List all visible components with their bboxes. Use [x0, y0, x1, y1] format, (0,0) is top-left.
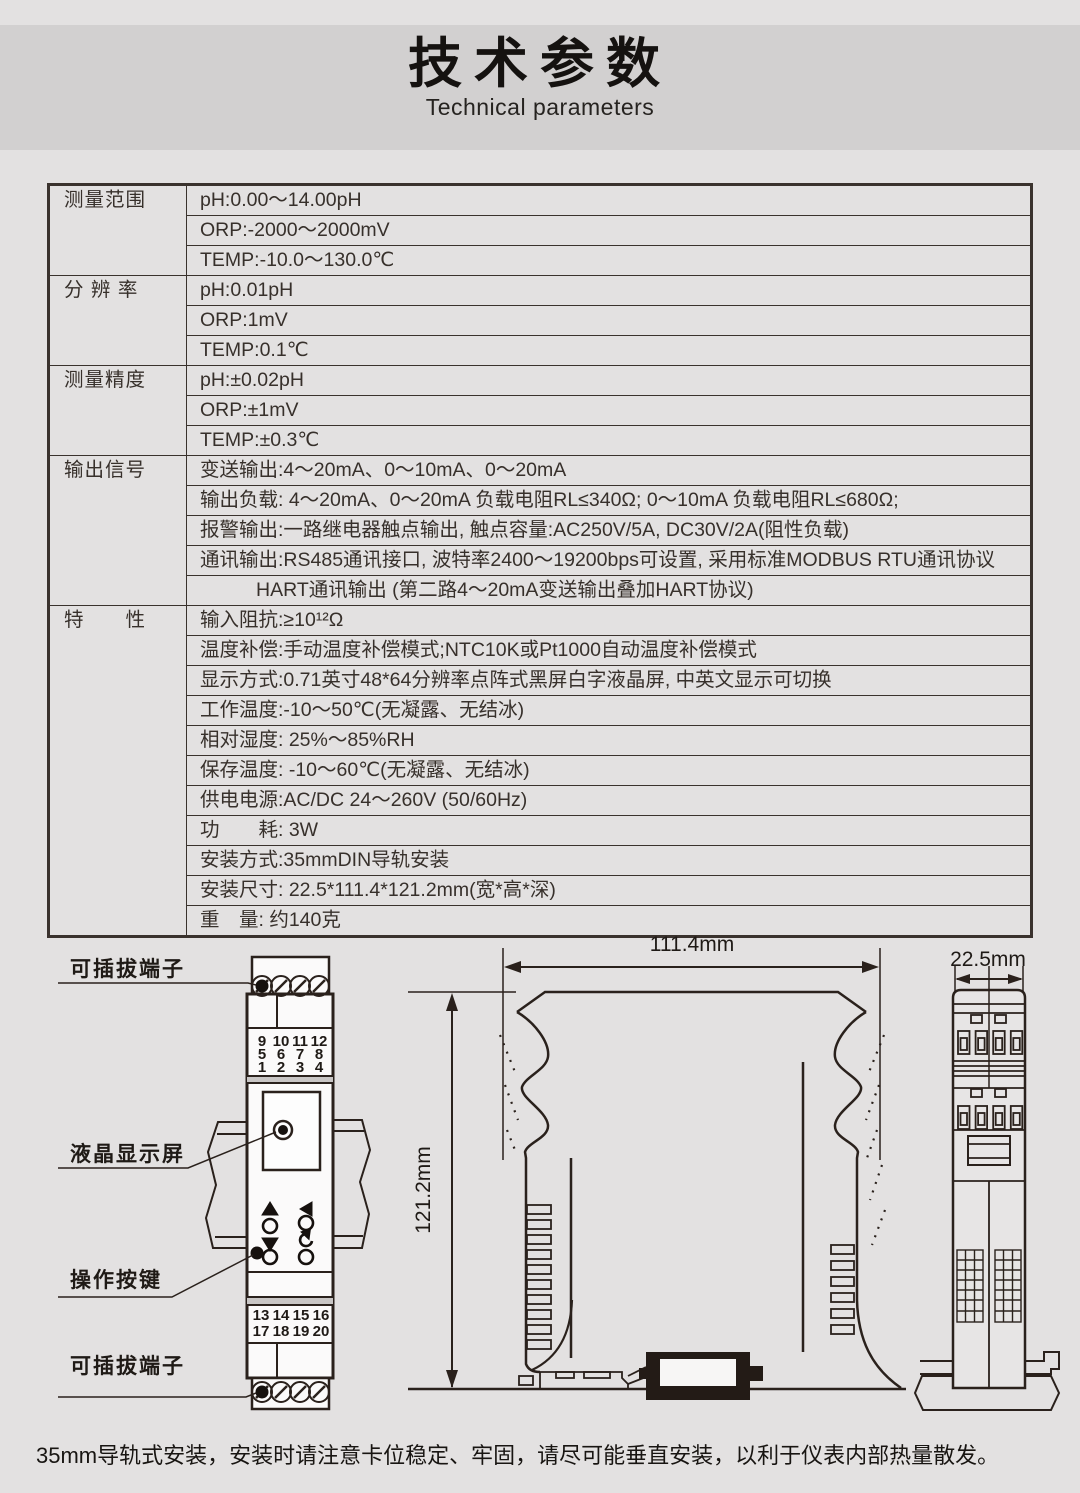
- table-row: TEMP:-10.0～130.0℃: [49, 246, 1032, 276]
- spec-value: ORP:1mV: [187, 306, 1032, 336]
- table-row: ORP:1mV: [49, 306, 1032, 336]
- height-dimension: 121.2mm: [408, 992, 516, 1388]
- spec-value: 工作温度:-10～50℃(无凝露、无结冰): [187, 696, 1032, 726]
- terminal-number: 14: [273, 1307, 290, 1324]
- side-view: 111.4mm 121.2mm: [408, 933, 906, 1400]
- leader-dot: [256, 1386, 269, 1399]
- callout-terminal-top: 可插拔端子: [70, 957, 185, 981]
- dim-depth-label: 22.5mm: [950, 948, 1026, 971]
- spec-group-label: 输出信号: [49, 456, 187, 606]
- front-callouts: 可插拔端子 液晶显示屏 操作按键 可插拔端子: [58, 957, 276, 1397]
- table-row: 特 性 输入阻抗:≥10¹²Ω: [49, 606, 1032, 636]
- table-row: 温度补偿:手动温度补偿模式;NTC10K或Pt1000自动温度补偿模式: [49, 636, 1032, 666]
- vent-slots-right: [831, 1245, 854, 1334]
- table-row: 测量范围 pH:0.00～14.00pH: [49, 185, 1032, 216]
- table-row: 输出负载: 4～20mA、0～20mA 负载电阻RL≤340Ω; 0～10mA …: [49, 486, 1032, 516]
- spec-value: 输出负载: 4～20mA、0～20mA 负载电阻RL≤340Ω; 0～10mA …: [187, 486, 1032, 516]
- spec-value: pH:0.01pH: [187, 276, 1032, 306]
- spec-value: 报警输出:一路继电器触点输出, 触点容量:AC250V/5A, DC30V/2A…: [187, 516, 1032, 546]
- terminal-number: 20: [313, 1323, 330, 1340]
- callout-terminal-bottom: 可插拔端子: [70, 1354, 185, 1378]
- table-row: ORP:±1mV: [49, 396, 1032, 426]
- spec-group-label: 测量精度: [49, 366, 187, 456]
- terminal-number: 4: [315, 1059, 324, 1076]
- callout-lcd: 液晶显示屏: [70, 1142, 185, 1166]
- installation-note: 35mm导轨式安装，安装时请注意卡位稳定、牢固，请尽可能垂直安装，以利于仪表内部…: [36, 1438, 999, 1470]
- leader-dot: [256, 980, 269, 993]
- terminal-number: 18: [273, 1323, 290, 1340]
- spec-value: 功 耗: 3W: [187, 816, 1032, 846]
- din-clip: [519, 1300, 646, 1389]
- specs-table: 测量范围 pH:0.00～14.00pH ORP:-2000～2000mV TE…: [47, 183, 1033, 938]
- table-row: 安装方式:35mmDIN导轨安装: [49, 846, 1032, 876]
- spec-value: 输入阻抗:≥10¹²Ω: [187, 606, 1032, 636]
- terminal-number: 2: [277, 1059, 285, 1076]
- page: 技术参数 Technical parameters 测量范围 pH:0.00～1…: [0, 0, 1080, 1493]
- spec-value: 保存温度: -10～60℃(无凝露、无结冰): [187, 756, 1032, 786]
- terminal-number: 17: [253, 1323, 270, 1340]
- spec-value: pH:±0.02pH: [187, 366, 1032, 396]
- lcd-screen: [263, 1092, 320, 1170]
- spec-value: 安装方式:35mmDIN导轨安装: [187, 846, 1032, 876]
- width-dimension: 111.4mm: [503, 933, 880, 1160]
- spec-value: 显示方式:0.71英寸48*64分辨率点阵式黑屏白字液晶屏, 中英文显示可切换: [187, 666, 1032, 696]
- spec-value: 温度补偿:手动温度补偿模式;NTC10K或Pt1000自动温度补偿模式: [187, 636, 1032, 666]
- spec-group-label: 测量范围: [49, 185, 187, 276]
- leader-dot: [251, 1247, 264, 1260]
- dim-width-label: 111.4mm: [650, 933, 734, 956]
- table-row: 输出信号 变送输出:4～20mA、0～10mA、0～20mA: [49, 456, 1032, 486]
- vent-slots-left: [527, 1205, 551, 1349]
- front-view: 9 10 11 12 5 6 7 8 1 2 3 4 13 14 15 16 1…: [58, 957, 370, 1409]
- spec-value: 通讯输出:RS485通讯接口, 波特率2400～19200bps可设置, 采用标…: [187, 546, 1032, 576]
- table-row: 安装尺寸: 22.5*111.4*121.2mm(宽*高*深): [49, 876, 1032, 906]
- spec-value: HART通讯输出 (第二路4～20mA变送输出叠加HART协议): [187, 576, 1032, 606]
- rail-buckle: [639, 1352, 763, 1400]
- module-body-front: [247, 957, 333, 1409]
- table-row: 保存温度: -10～60℃(无凝露、无结冰): [49, 756, 1032, 786]
- spec-group-label: 分 辨 率: [49, 276, 187, 366]
- table-row: HART通讯输出 (第二路4～20mA变送输出叠加HART协议): [49, 576, 1032, 606]
- spec-value: TEMP:0.1℃: [187, 336, 1032, 366]
- table-row: 功 耗: 3W: [49, 816, 1032, 846]
- terminal-number: 15: [293, 1307, 310, 1324]
- spec-group-label: 特 性: [49, 606, 187, 937]
- table-row: 通讯输出:RS485通讯接口, 波特率2400～19200bps可设置, 采用标…: [49, 546, 1032, 576]
- table-row: 测量精度 pH:±0.02pH: [49, 366, 1032, 396]
- spec-value: 供电电源:AC/DC 24～260V (50/60Hz): [187, 786, 1032, 816]
- table-row: 相对湿度: 25%～85%RH: [49, 726, 1032, 756]
- callout-buttons: 操作按键: [70, 1268, 162, 1292]
- page-subtitle: Technical parameters: [0, 94, 1080, 121]
- spec-value: ORP:-2000～2000mV: [187, 216, 1032, 246]
- spec-value: TEMP:-10.0～130.0℃: [187, 246, 1032, 276]
- hidden-edge-dots: [500, 1035, 885, 1245]
- spec-value: ORP:±1mV: [187, 396, 1032, 426]
- table-row: TEMP:0.1℃: [49, 336, 1032, 366]
- spec-value: pH:0.00～14.00pH: [187, 185, 1032, 216]
- table-row: 供电电源:AC/DC 24～260V (50/60Hz): [49, 786, 1032, 816]
- terminal-number: 16: [313, 1307, 330, 1324]
- terminal-number: 13: [253, 1307, 270, 1324]
- side-outline: [517, 992, 901, 1388]
- table-row: ORP:-2000～2000mV: [49, 216, 1032, 246]
- terminal-number: 19: [293, 1323, 310, 1340]
- spec-value: 安装尺寸: 22.5*111.4*121.2mm(宽*高*深): [187, 876, 1032, 906]
- table-row: 显示方式:0.71英寸48*64分辨率点阵式黑屏白字液晶屏, 中英文显示可切换: [49, 666, 1032, 696]
- page-title: 技术参数: [0, 25, 1080, 94]
- dimension-drawings: 9 10 11 12 5 6 7 8 1 2 3 4 13 14 15 16 1…: [0, 920, 1080, 1465]
- spec-value: 相对湿度: 25%～85%RH: [187, 726, 1032, 756]
- table-row: 工作温度:-10～50℃(无凝露、无结冰): [49, 696, 1032, 726]
- table-row: TEMP:±0.3℃: [49, 426, 1032, 456]
- dim-height-label: 121.2mm: [412, 1146, 435, 1234]
- header-band: 技术参数 Technical parameters: [0, 25, 1080, 150]
- spec-value: TEMP:±0.3℃: [187, 426, 1032, 456]
- spec-value: 变送输出:4～20mA、0～10mA、0～20mA: [187, 456, 1032, 486]
- terminal-number: 1: [258, 1059, 266, 1076]
- terminal-number: 3: [296, 1059, 304, 1076]
- table-row: 分 辨 率 pH:0.01pH: [49, 276, 1032, 306]
- end-view: 22.5mm: [915, 948, 1059, 1410]
- table-row: 报警输出:一路继电器触点输出, 触点容量:AC250V/5A, DC30V/2A…: [49, 516, 1032, 546]
